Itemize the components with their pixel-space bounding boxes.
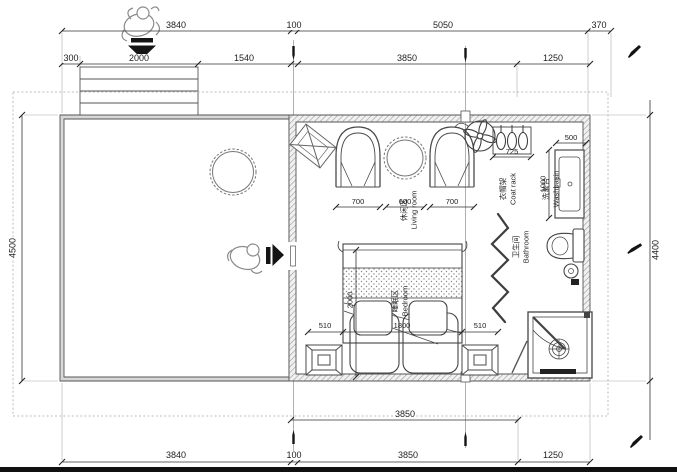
page-bottom-rule	[0, 467, 677, 472]
dim-label: 100	[285, 451, 302, 460]
dim-label: 700	[351, 198, 366, 206]
round-table-left	[210, 149, 256, 195]
arrow-right-icon	[266, 244, 284, 266]
dim-label: 3850	[396, 54, 418, 63]
dim-label: 510	[318, 322, 333, 330]
dim-label: 510	[473, 322, 488, 330]
room-label-bathroom: 卫生间 Bathroom	[511, 231, 531, 264]
floorplan-canvas: 3840 100 5050 370 300 2000 1540 3850 125…	[0, 0, 677, 473]
dim-label: 1800	[393, 322, 412, 330]
dim-label: 300	[62, 54, 79, 63]
door-leaf	[512, 341, 527, 373]
toilet	[547, 229, 584, 285]
room-label-zh: 衣帽架	[498, 173, 508, 205]
armchair	[336, 127, 380, 187]
dim-label: 370	[590, 21, 607, 30]
room-label-en: Coat rack	[508, 173, 518, 205]
entrance-steps	[80, 67, 198, 115]
round-table-living	[384, 137, 426, 179]
side-table-diamond	[290, 124, 336, 168]
dim-label: 1540	[233, 54, 255, 63]
dim-label: 1250	[542, 451, 564, 460]
room-label-en: Bedroom	[400, 286, 410, 316]
person-walking-icon	[227, 243, 262, 273]
nightstand	[462, 345, 498, 375]
room-label-zh: 休闲区	[399, 191, 409, 230]
dim-label: 3840	[165, 21, 187, 30]
dim-label: 725	[505, 148, 520, 156]
room-label-en: Bathroom	[521, 231, 531, 264]
nightstand	[306, 345, 342, 375]
dim-label: 5050	[432, 21, 454, 30]
person-walking-icon	[122, 7, 160, 41]
room-label-zh: 睡眠区	[390, 286, 400, 316]
room-label-bedroom: 睡眠区 Bedroom	[390, 286, 410, 316]
room-label-washbasin: 洗漱台 Washbasin	[541, 171, 561, 208]
room-label-en: Living room	[409, 191, 419, 230]
folding-partition	[492, 214, 508, 322]
room-label-coat-rack: 衣帽架 Coat rack	[498, 173, 518, 205]
dim-label: 3840	[165, 451, 187, 460]
armchair	[430, 127, 474, 187]
room-label-living: 休闲区 Living room	[399, 191, 419, 230]
room-label-zh: 卫生间	[511, 231, 521, 264]
dim-label: 3850	[397, 451, 419, 460]
room-label-en: Washbasin	[551, 171, 561, 208]
dim-label: 4400	[652, 239, 661, 261]
dim-label: 700	[445, 198, 460, 206]
dim-label: 4500	[9, 237, 18, 259]
plan-linework	[0, 0, 677, 473]
dim-label: 2000	[128, 54, 150, 63]
dim-label: 3850	[394, 410, 416, 419]
dim-label: 100	[285, 21, 302, 30]
dim-label: 500	[564, 134, 579, 142]
room-label-zh: 洗漱台	[541, 171, 551, 208]
dim-label: 1250	[542, 54, 564, 63]
shower	[528, 312, 592, 378]
dim-label: 2000	[346, 291, 354, 310]
